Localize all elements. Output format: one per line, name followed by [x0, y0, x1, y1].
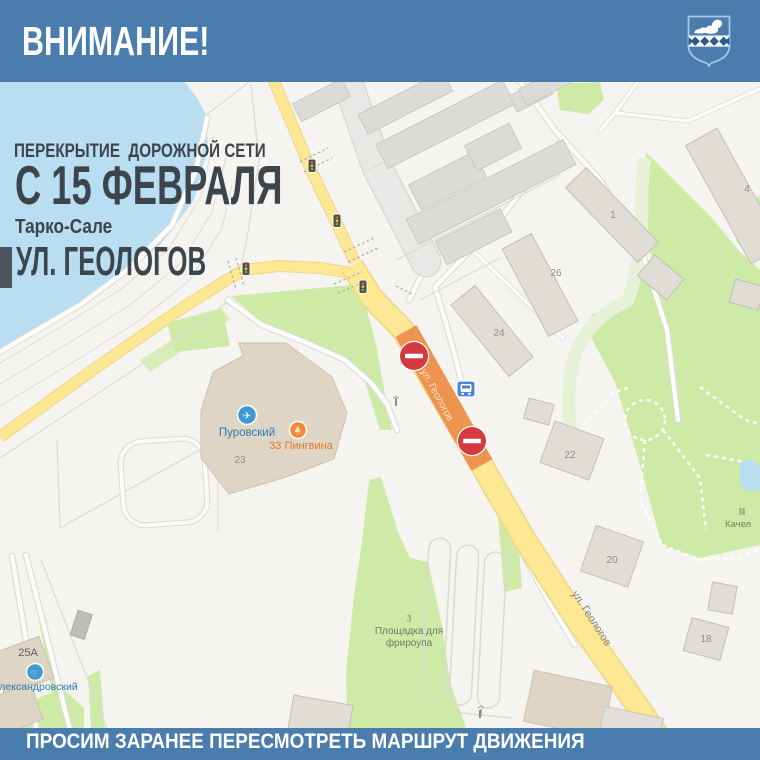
- svg-text:4: 4: [744, 184, 750, 195]
- svg-text:фрироупа: фрироупа: [386, 637, 433, 649]
- svg-text:🛒: 🛒: [29, 667, 40, 678]
- svg-text:25А: 25А: [18, 647, 38, 659]
- svg-text:Площадка для: Площадка для: [375, 626, 443, 637]
- svg-text:24: 24: [493, 328, 505, 339]
- svg-text:20: 20: [606, 555, 618, 566]
- svg-text:Пуровский: Пуровский: [219, 427, 275, 439]
- svg-text:⛓: ⛓: [738, 508, 747, 516]
- svg-text:23: 23: [234, 455, 246, 466]
- svg-text:✈: ✈: [243, 411, 251, 422]
- svg-text:33 Пингвина: 33 Пингвина: [269, 440, 333, 452]
- svg-text:26: 26: [550, 268, 562, 279]
- svg-text:18: 18: [700, 634, 712, 645]
- svg-text:🍦: 🍦: [292, 425, 303, 436]
- svg-text:Качел: Качел: [725, 519, 751, 530]
- svg-text:1: 1: [610, 210, 616, 221]
- svg-text:22: 22: [564, 450, 576, 461]
- svg-text:Александровский: Александровский: [0, 681, 78, 693]
- svg-text:ʒ: ʒ: [407, 613, 412, 622]
